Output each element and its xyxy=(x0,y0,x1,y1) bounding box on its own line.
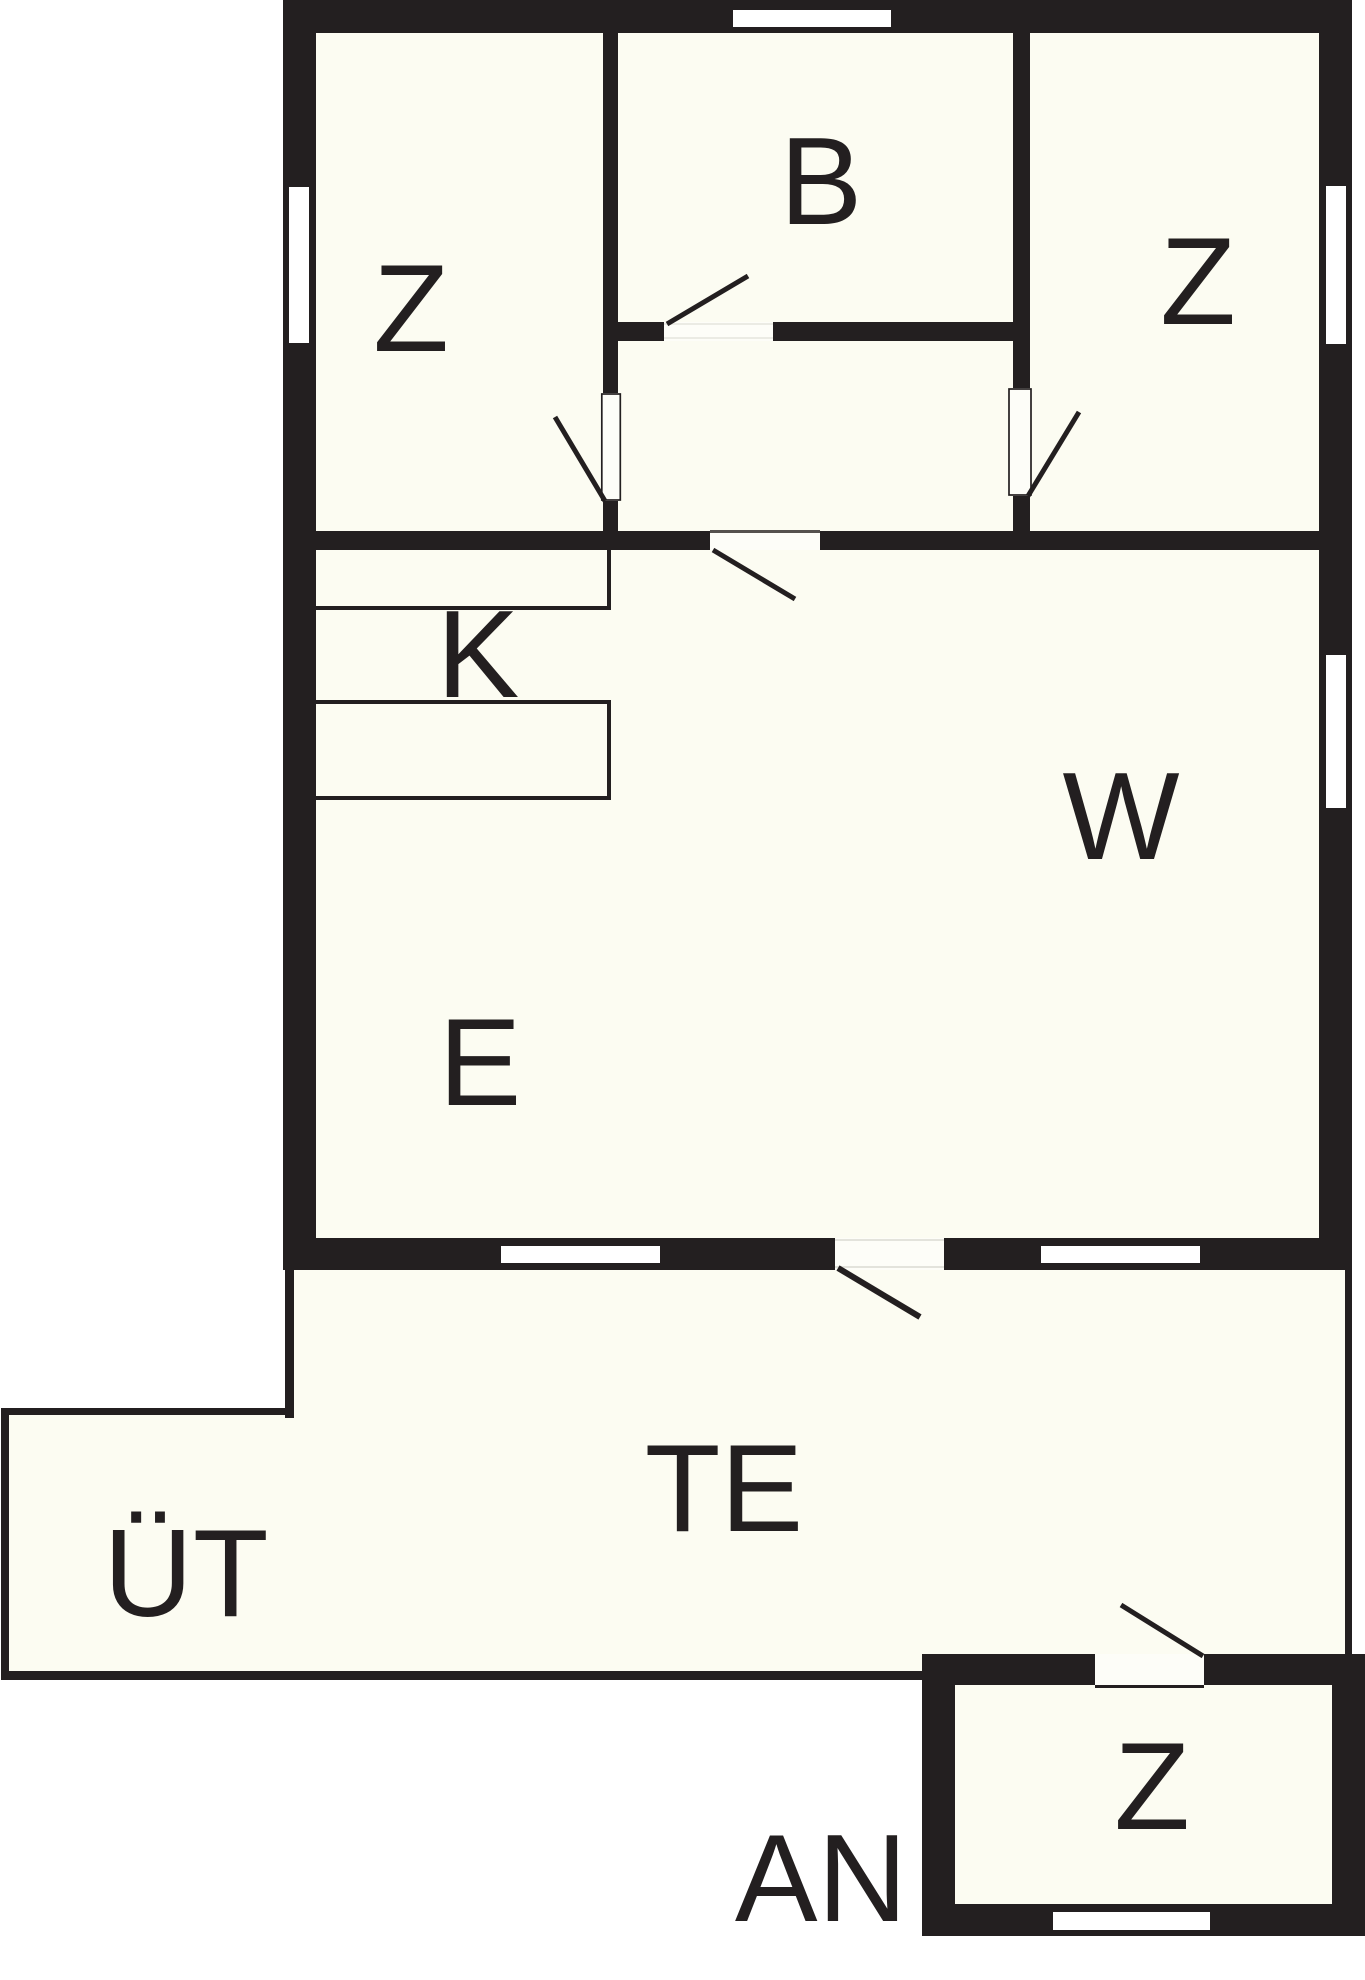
svg-text:E: E xyxy=(439,994,522,1132)
svg-text:Z: Z xyxy=(1160,213,1236,351)
svg-text:K: K xyxy=(437,586,520,724)
svg-text:Z: Z xyxy=(373,240,449,378)
svg-text:TE: TE xyxy=(645,1420,803,1558)
svg-text:ÜT: ÜT xyxy=(103,1505,268,1643)
svg-text:AN: AN xyxy=(735,1810,907,1948)
svg-text:B: B xyxy=(780,113,863,251)
svg-text:Z: Z xyxy=(1114,1718,1190,1856)
svg-text:W: W xyxy=(1062,748,1179,886)
